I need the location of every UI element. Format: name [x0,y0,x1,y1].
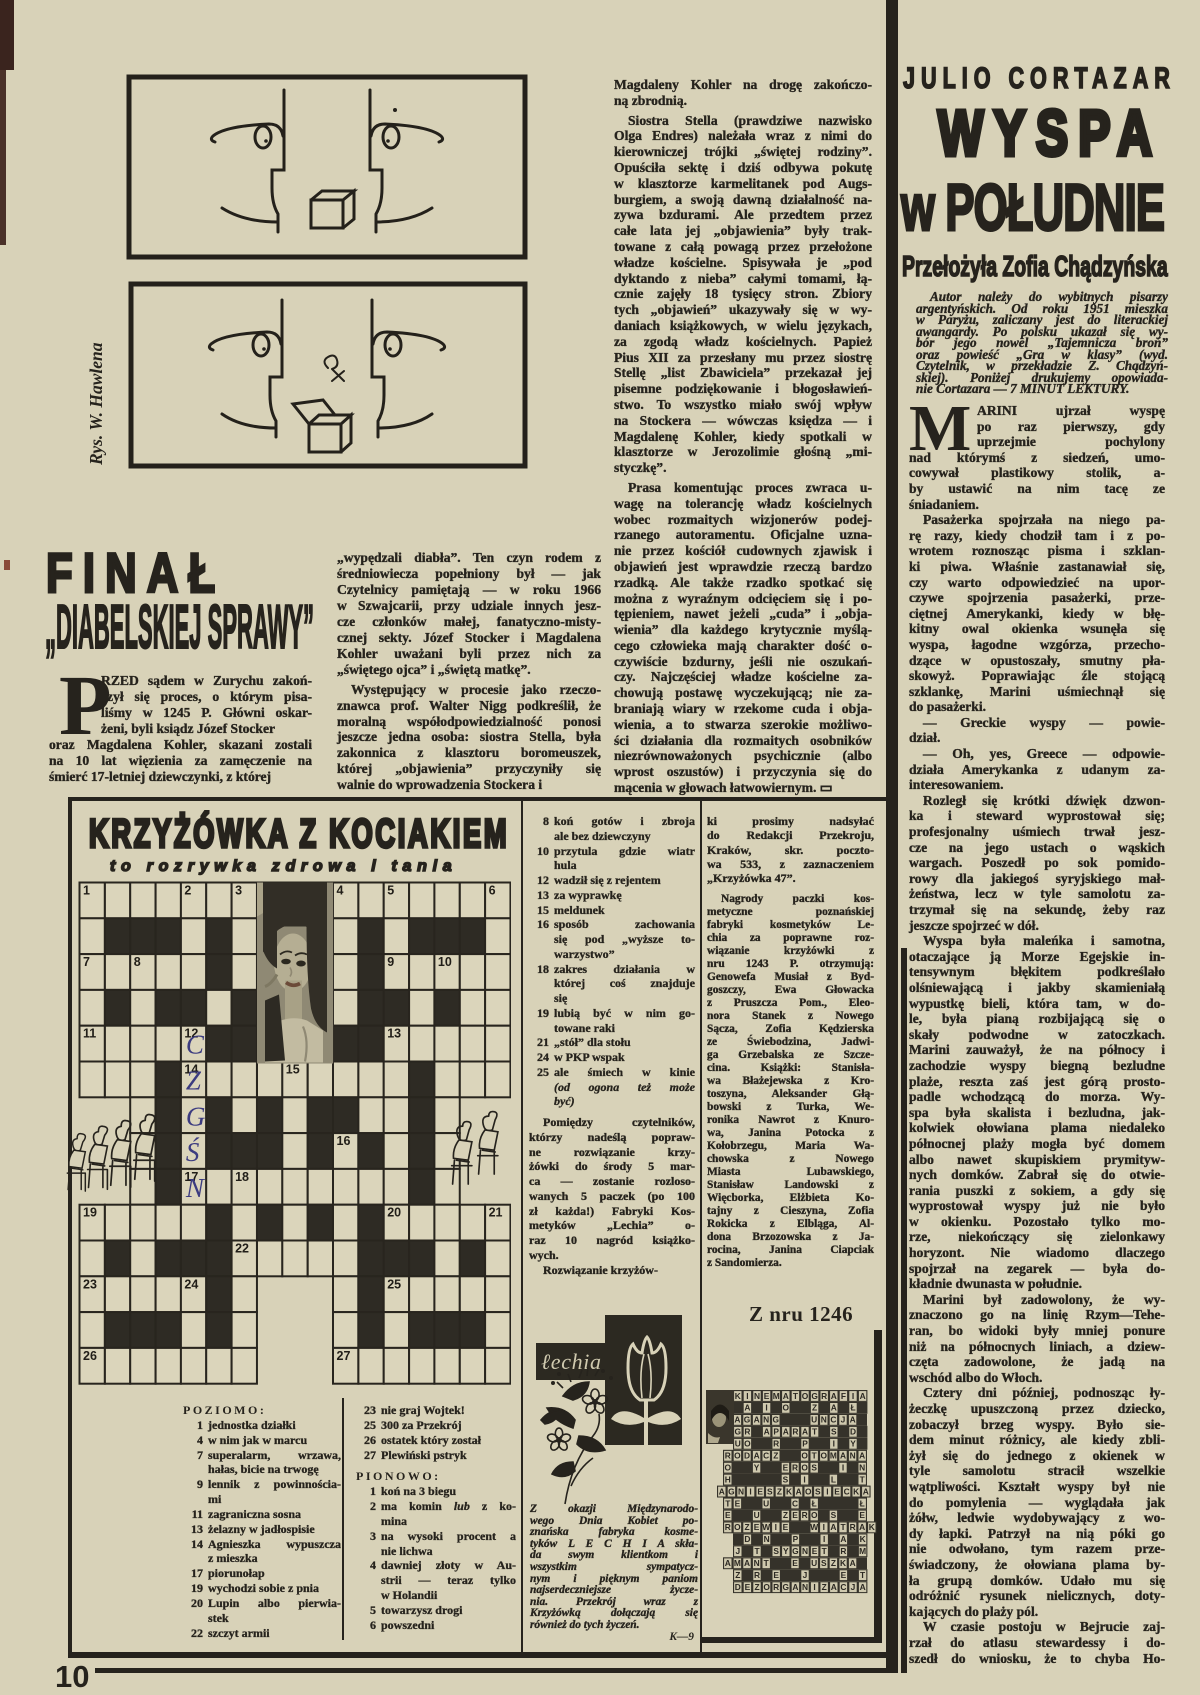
svg-text:11: 11 [83,1027,96,1041]
svg-text:A: A [831,1403,837,1413]
svg-text:E: E [725,1510,731,1520]
svg-text:W: W [810,1522,818,1532]
svg-text:A: A [850,1558,856,1568]
svg-text:I: I [775,1522,777,1532]
svg-text:22: 22 [235,1242,249,1256]
svg-text:M: M [859,1546,866,1556]
svg-text:Y: Y [783,1546,789,1556]
svg-text:W: W [762,1522,770,1532]
svg-text:L: L [831,1474,836,1484]
svg-text:N: N [754,1391,760,1401]
svg-text:3: 3 [235,884,242,898]
svg-text:T: T [840,1522,846,1532]
svg-text:A: A [859,1522,865,1532]
svg-text:C: C [830,1415,836,1425]
svg-text:I: I [826,1486,828,1496]
svg-text:T: T [725,1498,731,1508]
svg-text:A: A [831,1391,837,1401]
svg-text:Z: Z [777,1486,782,1496]
svg-text:E: E [792,1510,798,1520]
svg-text:S: S [821,1558,827,1568]
svg-text:E: E [745,1582,751,1592]
svg-text:Ł: Ł [860,1498,865,1508]
svg-text:25: 25 [387,1277,401,1291]
svg-text:I: I [852,1391,854,1401]
svg-text:S: S [831,1510,837,1520]
svg-text:18: 18 [235,1170,249,1184]
svg-text:A: A [802,1427,808,1437]
svg-text:U: U [811,1415,817,1425]
svg-text:R: R [725,1451,731,1461]
svg-text:K: K [840,1558,846,1568]
svg-text:U: U [735,1439,741,1449]
svg-text:Z: Z [831,1558,836,1568]
svg-text:C: C [844,1486,850,1496]
svg-text:24: 24 [184,1277,198,1291]
svg-text:N: N [763,1415,769,1425]
svg-text:T: T [793,1391,799,1401]
svg-text:O: O [725,1462,732,1472]
svg-text:E: E [735,1498,741,1508]
svg-text:4: 4 [337,884,344,898]
svg-text:A: A [783,1391,789,1401]
svg-text:R: R [744,1427,750,1437]
svg-text:I: I [803,1474,805,1484]
svg-text:E: E [757,1486,763,1496]
svg-text:M: M [734,1558,741,1568]
svg-text:O: O [801,1451,808,1461]
svg-text:N: N [754,1558,760,1568]
svg-text:O: O [734,1451,741,1461]
svg-text:K: K [853,1486,859,1496]
svg-text:S: S [773,1546,779,1556]
svg-text:A: A [725,1558,731,1568]
svg-text:A: A [796,1486,802,1496]
svg-text:G: G [186,1101,206,1131]
svg-text:6: 6 [489,884,496,898]
svg-text:15: 15 [286,1063,300,1077]
svg-text:T: T [812,1427,818,1437]
svg-text:E: E [754,1522,760,1532]
svg-text:7: 7 [83,955,90,969]
svg-text:J: J [735,1546,740,1556]
svg-text:T: T [822,1546,828,1556]
svg-text:I: I [813,1582,815,1592]
svg-text:O: O [734,1522,741,1532]
svg-text:R: R [802,1510,808,1520]
svg-text:T: T [812,1451,818,1461]
svg-text:A: A [840,1451,846,1461]
svg-text:E: E [783,1522,789,1532]
svg-text:N: N [802,1546,808,1556]
svg-text:I: I [765,1403,767,1413]
svg-text:U: U [811,1558,817,1568]
svg-text:E: E [783,1462,789,1472]
svg-text:D: D [850,1427,856,1437]
svg-text:S: S [783,1474,789,1484]
svg-text:K: K [860,1534,866,1544]
svg-text:R: R [840,1546,846,1556]
svg-text:A: A [792,1582,798,1592]
svg-text:A: A [754,1451,760,1461]
svg-text:T: T [860,1474,866,1484]
svg-text:20: 20 [387,1206,401,1220]
svg-text:1: 1 [83,884,90,898]
svg-text:Z: Z [812,1403,817,1413]
svg-text:N: N [821,1415,827,1425]
svg-text:H: H [725,1474,731,1484]
svg-text:26: 26 [83,1349,97,1363]
svg-text:I: I [823,1534,825,1544]
svg-text:G: G [744,1415,751,1425]
svg-text:Z: Z [754,1582,759,1592]
svg-text:5: 5 [387,884,394,898]
svg-text:E: E [841,1570,847,1580]
svg-text:T: T [860,1570,866,1580]
svg-text:I: I [842,1462,844,1472]
svg-text:2: 2 [184,884,191,898]
svg-text:U: U [754,1510,760,1520]
svg-text:8: 8 [134,955,141,969]
svg-text:R: R [821,1391,827,1401]
svg-text:J: J [851,1582,856,1592]
svg-text:O: O [763,1582,770,1592]
svg-text:D: D [744,1451,750,1461]
svg-text:Z: Z [822,1582,827,1592]
svg-text:I: I [749,1486,751,1496]
svg-text:J: J [841,1415,846,1425]
svg-text:I: I [833,1439,835,1449]
svg-text:I: I [823,1522,825,1532]
svg-text:O: O [821,1451,828,1461]
svg-text:N: N [802,1582,808,1592]
svg-text:10: 10 [438,955,452,969]
svg-text:C: C [186,1030,205,1060]
svg-text:G: G [728,1486,735,1496]
svg-text:E: E [812,1546,818,1556]
svg-text:O: O [802,1391,809,1401]
svg-text:Ś: Ś [186,1137,200,1167]
svg-text:E: E [764,1391,770,1401]
svg-text:A: A [863,1486,869,1496]
svg-text:G: G [792,1546,799,1556]
svg-text:Z: Z [186,1066,202,1096]
svg-text:N: N [764,1534,770,1544]
svg-text:S: S [767,1486,773,1496]
svg-text:R: R [792,1427,798,1437]
svg-text:A: A [831,1582,837,1592]
svg-text:K: K [869,1522,875,1532]
svg-text:F: F [841,1391,846,1401]
svg-text:Z: Z [773,1451,778,1461]
svg-text:A: A [860,1582,866,1592]
svg-text:K: K [735,1391,741,1401]
svg-text:G: G [783,1582,790,1592]
svg-text:R: R [850,1522,856,1532]
svg-text:O: O [805,1486,812,1496]
svg-text:R: R [754,1570,760,1580]
svg-text:O: O [744,1439,751,1449]
svg-text:T: T [764,1558,770,1568]
svg-text:A: A [850,1415,856,1425]
svg-text:Z: Z [783,1510,788,1520]
svg-text:Z: Z [735,1570,740,1580]
svg-text:U: U [763,1498,769,1508]
svg-text:R: R [792,1462,798,1472]
svg-text:N: N [859,1462,865,1472]
svg-text:P: P [793,1534,799,1544]
svg-text:N: N [738,1486,744,1496]
svg-text:M: M [773,1391,780,1401]
svg-text:T: T [754,1546,760,1556]
svg-text:O: O [811,1510,818,1520]
svg-text:O: O [783,1403,790,1413]
svg-text:P: P [802,1439,808,1449]
svg-text:E: E [792,1558,798,1568]
svg-text:K: K [786,1486,792,1496]
svg-text:23: 23 [83,1277,97,1291]
svg-text:J: J [803,1570,808,1580]
svg-text:E: E [859,1510,865,1520]
svg-text:A: A [830,1522,836,1532]
svg-text:A: A [840,1534,846,1544]
svg-text:A: A [859,1451,865,1461]
svg-text:A: A [860,1391,866,1401]
svg-text:D: D [735,1582,741,1592]
svg-text:9: 9 [387,955,394,969]
svg-text:A: A [734,1415,740,1425]
svg-text:E: E [834,1486,840,1496]
svg-text:R: R [725,1522,731,1532]
svg-text:A: A [744,1403,750,1413]
svg-text:S: S [831,1427,837,1437]
svg-text:D: D [744,1534,750,1544]
svg-text:R: R [773,1439,779,1449]
svg-text:Y: Y [850,1439,856,1449]
svg-text:S: S [811,1462,817,1472]
svg-text:27: 27 [337,1349,351,1363]
svg-text:13: 13 [387,1027,401,1041]
svg-text:P: P [773,1427,779,1437]
svg-text:E: E [773,1570,779,1580]
svg-text:Ł: Ł [812,1498,817,1508]
svg-text:O: O [801,1462,808,1472]
svg-text:A: A [764,1427,770,1437]
svg-text:A: A [754,1415,760,1425]
svg-text:C: C [840,1582,846,1592]
svg-text:G: G [773,1415,780,1425]
svg-text:Z: Z [744,1522,749,1532]
svg-text:Ł: Ł [850,1403,855,1413]
svg-text:M: M [830,1451,837,1461]
svg-text:N: N [850,1451,856,1461]
svg-text:16: 16 [337,1134,351,1148]
svg-text:C: C [792,1498,798,1508]
svg-text:I: I [746,1391,748,1401]
svg-text:A: A [783,1427,789,1437]
svg-text:G: G [735,1427,742,1437]
svg-text:A: A [719,1486,725,1496]
svg-text:N: N [185,1173,206,1203]
svg-text:Y: Y [754,1462,760,1472]
svg-text:A: A [744,1558,750,1568]
svg-text:G: G [811,1391,818,1401]
svg-text:R: R [773,1582,779,1592]
svg-text:C: C [763,1451,769,1461]
svg-text:S: S [815,1486,821,1496]
